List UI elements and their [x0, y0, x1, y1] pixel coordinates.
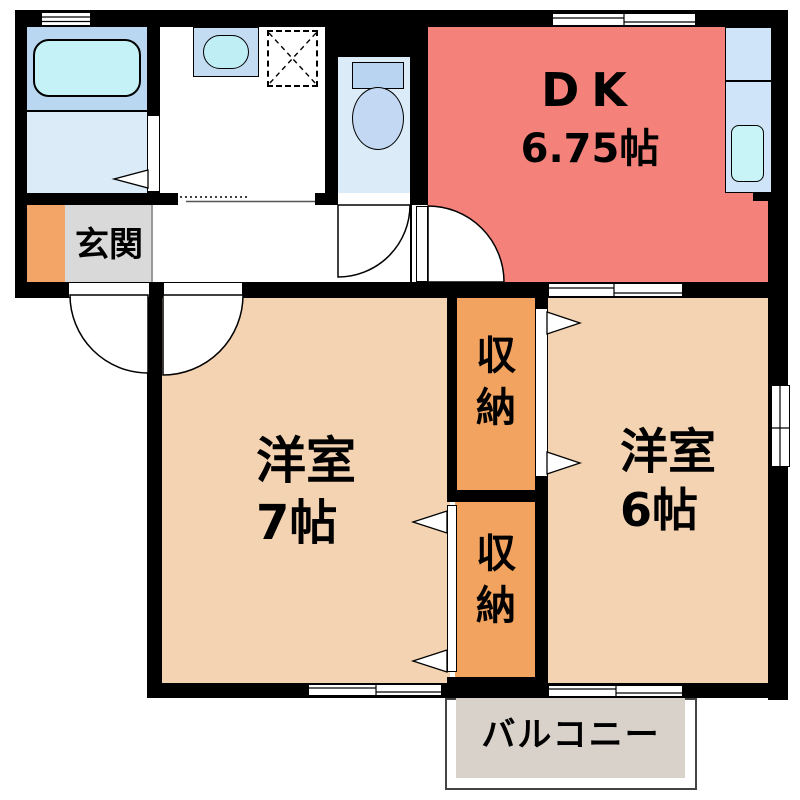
dk-label: DK 6.75帖: [440, 62, 740, 174]
bath-door-arrow: [114, 170, 148, 188]
dk-door-swing: [428, 206, 504, 282]
western-room-6-label: 洋室 6帖: [620, 422, 716, 540]
western-room-7-label: 洋室 7帖: [256, 430, 356, 553]
closet-lower-arrow: [413, 511, 447, 533]
toilet-door-swing: [338, 205, 410, 277]
room-size: 6帖: [620, 482, 716, 540]
room-size: 7帖: [256, 493, 356, 553]
room-name: 洋室: [256, 430, 356, 493]
room7-door-swing: [163, 295, 243, 375]
closet-upper-arrow: [547, 452, 580, 474]
entrance-label: 玄関: [63, 224, 155, 267]
closet-lower-label: 収 納: [455, 528, 537, 632]
entrance-door-swing: [70, 295, 148, 373]
closet-char: 納: [455, 382, 537, 434]
closet-upper-arrow: [547, 312, 580, 334]
closet-char: 納: [455, 580, 537, 632]
floor-plan: 玄関 DK 6.75帖 洋室 7帖 洋室 6帖 収 納 収 納 バルコニー: [0, 0, 800, 800]
closet-lower-arrow: [413, 650, 447, 672]
room-name: 洋室: [620, 422, 716, 482]
dk-size: 6.75帖: [440, 124, 740, 174]
closet-upper-label: 収 納: [455, 330, 537, 434]
balcony-label: バルコニー: [465, 714, 677, 757]
closet-char: 収: [455, 528, 537, 580]
closet-char: 収: [455, 330, 537, 382]
dk-name: DK: [440, 62, 740, 120]
